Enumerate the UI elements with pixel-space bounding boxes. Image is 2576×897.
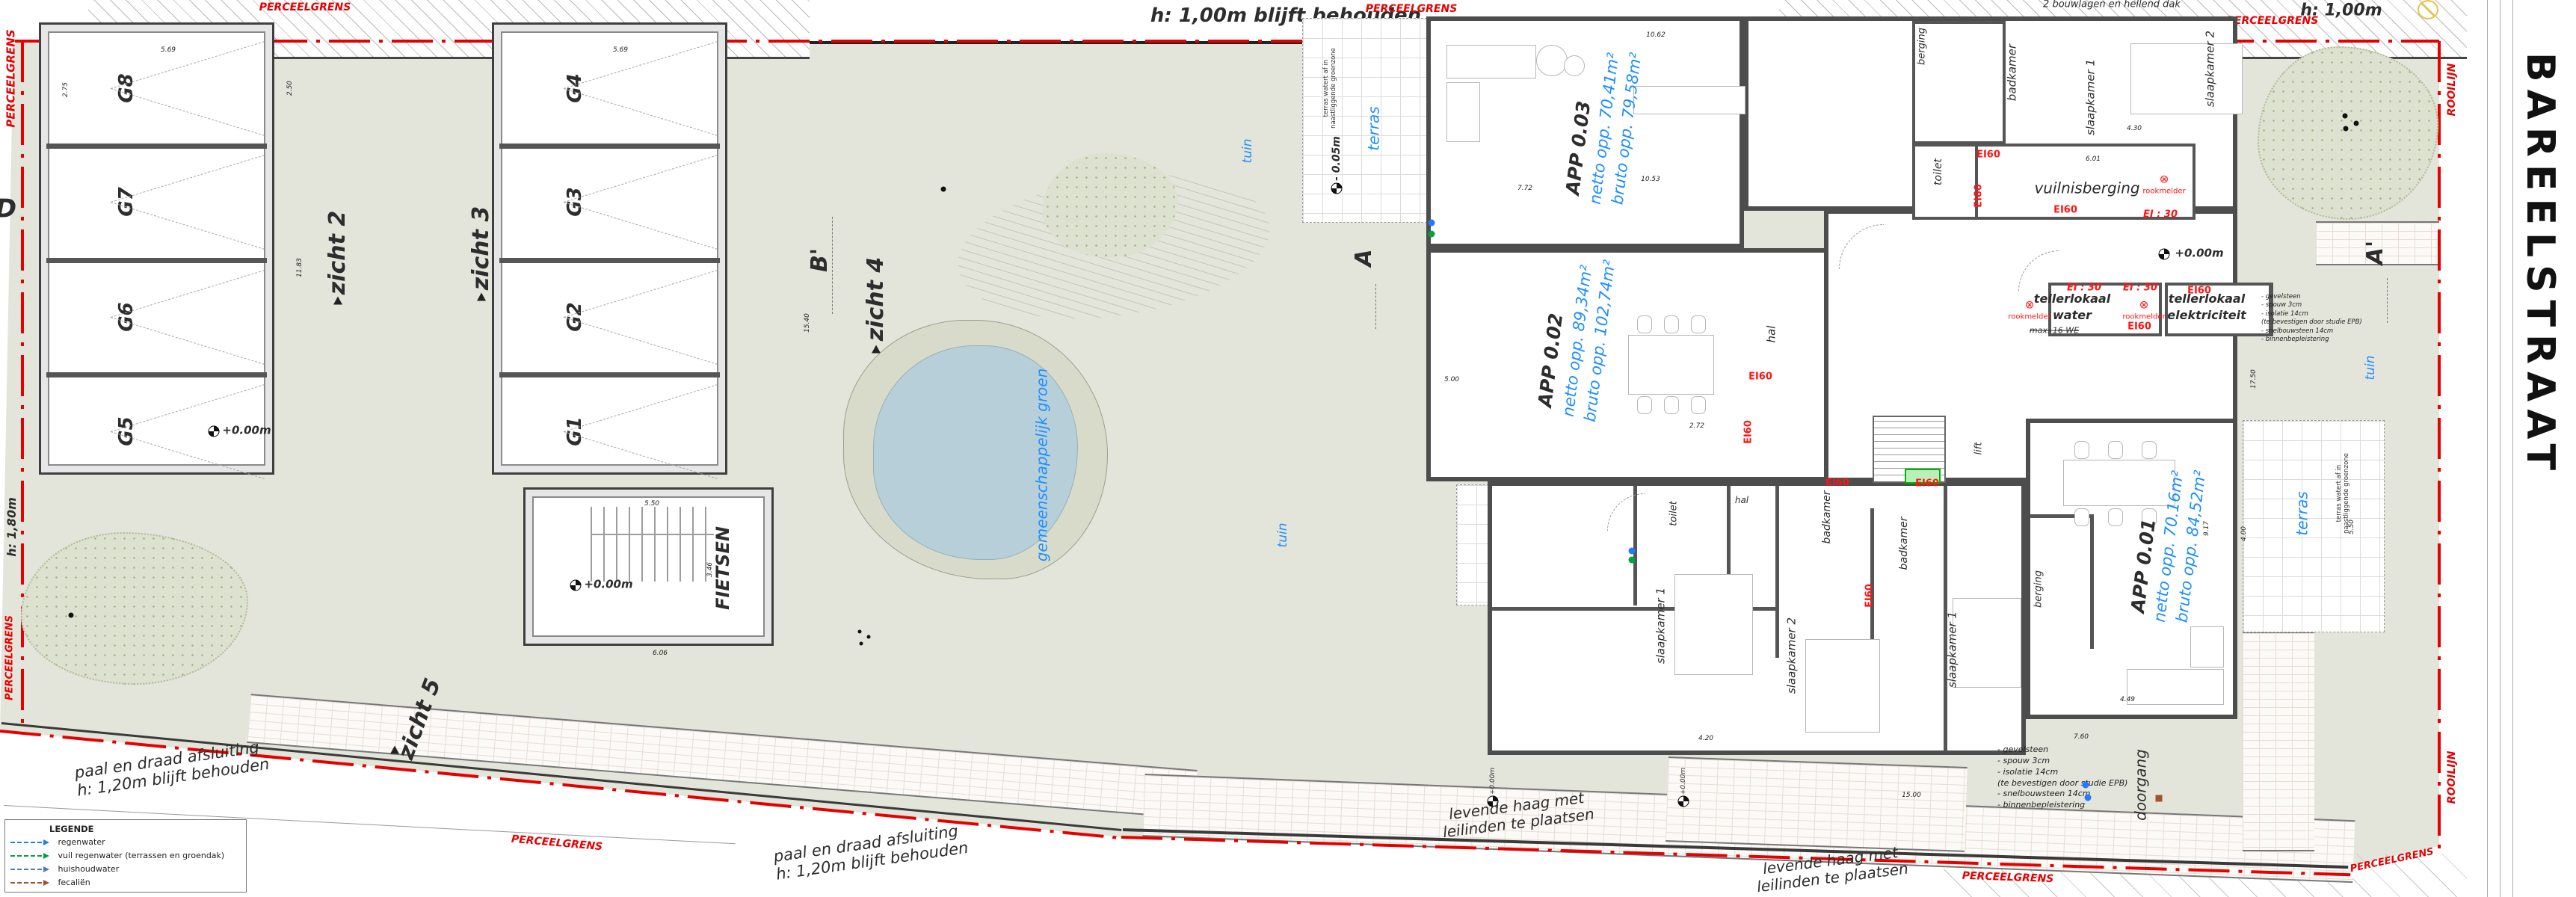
wall xyxy=(2090,514,2094,649)
note-line: (te bevestigen door studie EPB) xyxy=(2261,318,2362,327)
utility-dot-green xyxy=(1429,231,1435,238)
fence-note-south: paal en draad afsluiting h: 1,20m blijft… xyxy=(772,821,970,884)
room-label-slaapkamer1-sw: slaapkamer 1 xyxy=(1654,588,1667,664)
furniture-table-round xyxy=(1564,55,1585,76)
street-name: BAREELSTRAAT xyxy=(2518,52,2563,478)
view-camera-icon xyxy=(333,297,342,305)
dimension: 5.50 xyxy=(644,500,659,508)
garage-wall-3 xyxy=(46,372,267,377)
note-line: - binnenbepleistering xyxy=(1997,800,2127,811)
dimension: 4.00 xyxy=(2240,526,2248,541)
smoke-detector-icon: ⊗ xyxy=(2025,298,2035,311)
perceelgrens-label-west-bottom: PERCEELGRENS xyxy=(5,615,16,700)
perceelgrens-label-west-top: PERCEELGRENS xyxy=(4,29,17,127)
furniture-chair xyxy=(1664,396,1679,414)
furniture-dining-table xyxy=(1628,335,1714,395)
note-line: - spouw 3cm xyxy=(2261,301,2362,309)
dimension: 17.50 xyxy=(2250,369,2258,389)
section-line-a xyxy=(1375,284,1376,329)
tuin-label-mid: tuin xyxy=(1276,523,1291,548)
legend-arrow-icon xyxy=(43,880,49,886)
dimension: 4.49 xyxy=(2120,696,2135,703)
fire-label-ei60: EI60 xyxy=(1744,420,1755,444)
room-label-badkamer-s1: badkamer xyxy=(1821,490,1833,543)
garage-label-g6: G6 xyxy=(116,302,138,331)
section-marker-d: D xyxy=(0,194,16,224)
furniture-bed xyxy=(1674,574,1753,675)
wall-buildup-note: - gevelsteen - spouw 3cm - isolatie 14cm… xyxy=(1997,745,2127,811)
ne-wall-height: h: 1,00m xyxy=(2300,1,2382,19)
fire-label-ei60: EI60 xyxy=(2053,206,2077,217)
tree-dot xyxy=(867,635,871,639)
smoke-detector-label: rookmelder xyxy=(2122,312,2165,321)
perceelgrens-label-north-mid: PERCEELGRENS xyxy=(1366,3,1458,15)
room-toilet-north xyxy=(1912,144,1978,220)
tree-dot xyxy=(2343,114,2348,119)
note-line: - binnenbepleistering xyxy=(2261,336,2362,344)
dimension: 4.30 xyxy=(2127,125,2142,132)
section-line-a-prime xyxy=(2387,278,2388,323)
furniture-kitchen-island xyxy=(1633,86,1745,114)
tree-dot xyxy=(69,613,74,618)
dimension: 5.00 xyxy=(1444,376,1459,383)
garage-label-g2: G2 xyxy=(564,302,587,331)
note-line: - gevelsteen xyxy=(1997,745,2127,756)
dimension: 11.83 xyxy=(296,258,303,277)
furniture-dining-table xyxy=(2063,460,2175,506)
garage-label-g3: G3 xyxy=(564,187,587,216)
view-label-zicht4: zicht 4 xyxy=(863,257,890,342)
view-camera-icon xyxy=(477,293,486,301)
dimension: 6.01 xyxy=(2086,155,2101,163)
note-line: - gevelsteen xyxy=(2261,293,2362,301)
dimension: 10.62 xyxy=(1646,31,1666,39)
fire-label-ei60: EI60 xyxy=(2187,286,2211,298)
street-line-2 xyxy=(2500,0,2500,897)
room-label-hal-south: hal xyxy=(1735,496,1748,506)
terras-label-west: terras xyxy=(1366,106,1383,150)
garage-block-east xyxy=(492,22,727,475)
dimension: 2.75 xyxy=(62,82,70,97)
legend-arrow-icon xyxy=(43,866,49,872)
west-fence-height: h: 1,80m xyxy=(5,497,19,557)
utility-dot-brown xyxy=(2156,795,2163,802)
level-label: +0.00m xyxy=(1680,768,1687,795)
view-label-zicht2: zicht 2 xyxy=(325,211,351,295)
garage-wall-5 xyxy=(499,258,720,263)
boundary-line-east-rooilijn xyxy=(2438,41,2441,848)
fire-label-ei60: EI60 xyxy=(1974,184,1985,208)
level-symbol xyxy=(1678,796,1689,807)
legend-label: huishoudwater xyxy=(58,864,120,874)
tree-dot xyxy=(2344,126,2349,132)
room-label-hal-app02: hal xyxy=(1765,326,1778,343)
legend-label: regenwater xyxy=(58,837,105,847)
legend-line-icon xyxy=(10,842,42,843)
bike-row xyxy=(591,507,714,582)
furniture-sofa xyxy=(1446,82,1480,142)
utility-dot-blue xyxy=(1629,548,1636,555)
fire-label-ei30: EI : 30 xyxy=(2067,283,2101,295)
garage-label-g4: G4 xyxy=(564,73,587,102)
smoke-detector-label: rookmelder xyxy=(2008,312,2050,321)
fire-label-ei60: EI60 xyxy=(2127,322,2151,333)
level-label: +0.00m xyxy=(1489,768,1497,795)
smoke-detector-icon: ⊗ xyxy=(2139,298,2149,311)
legend-item-fecalien: fecaliën xyxy=(10,878,90,887)
terrace-app01-east xyxy=(2243,420,2385,632)
dimension: 5.50 xyxy=(2348,520,2355,534)
terras-label-east: terras xyxy=(2294,491,2311,535)
section-marker-b-prime: B' xyxy=(807,248,833,272)
garage-label-g1: G1 xyxy=(564,416,587,446)
furniture-bed xyxy=(1953,598,2021,688)
garage-wall-2 xyxy=(46,258,267,263)
furniture-chair xyxy=(2074,508,2089,526)
street-line-3 xyxy=(2512,0,2513,897)
section-line-b xyxy=(832,217,833,314)
dimension: 2.72 xyxy=(1689,422,1704,430)
legend-item-huishoudwater: huishoudwater xyxy=(10,864,119,874)
rooilijn-label-top: ROOILIJN xyxy=(2446,64,2458,117)
fire-label-ei60: EI60 xyxy=(1915,479,1939,490)
room-label-slaapkamer1-se: slaapkamer 1 xyxy=(1946,611,1959,688)
note-line: (te bevestigen door studie EPB) xyxy=(1997,778,2127,789)
garage-label-g5: G5 xyxy=(116,416,138,446)
view-label-zicht3: zicht 3 xyxy=(469,206,495,291)
legend-item-vuil-regenwater: vuil regenwater (terrassen en groendak) xyxy=(10,851,224,860)
garage-label-g7: G7 xyxy=(116,187,138,216)
room-label-slaapkamer2-s: slaapkamer 2 xyxy=(1785,617,1798,694)
legend-arrow-icon xyxy=(43,839,49,845)
fire-label-ei30: EI : 30 xyxy=(2123,283,2157,295)
furniture-chair xyxy=(1637,396,1652,414)
garage-label-g8: G8 xyxy=(116,73,138,102)
room-label-elektriciteit: elektriciteit xyxy=(2167,309,2246,322)
room-label-toilet: toilet xyxy=(1932,158,1944,185)
room-label-slaapkamer2: slaapkamer 2 xyxy=(2204,31,2216,107)
room-label-vuilnisberging: vuilnisberging xyxy=(2034,180,2139,197)
legend-label: vuil regenwater (terrassen en groendak) xyxy=(58,851,225,860)
furniture-chair xyxy=(1691,396,1706,414)
wall xyxy=(1870,508,1874,658)
furniture-chair xyxy=(1664,315,1679,333)
dimension: 7.60 xyxy=(2074,733,2089,741)
dimension: 5.69 xyxy=(161,46,176,54)
perceelgrens-label-north-west: PERCEELGRENS xyxy=(259,1,351,13)
common-green-label: gemeenschappelijk groen xyxy=(1034,369,1051,562)
room-label-water: water xyxy=(2053,309,2092,322)
fire-label-ei60: EI60 xyxy=(1825,478,1849,490)
rooilijn-label-bottom: ROOILIJN xyxy=(2446,751,2458,804)
dimension: 6.06 xyxy=(653,650,668,657)
dimension: 7.72 xyxy=(1517,185,1532,192)
fire-label-ei30: EI : 30 xyxy=(2143,210,2178,221)
legend-title: LEGENDE xyxy=(49,824,94,834)
tree-dot xyxy=(860,642,863,646)
furniture-chair xyxy=(2074,441,2089,459)
furniture-bed xyxy=(1805,639,1880,733)
utility-dot-blue xyxy=(2085,795,2092,801)
dimension: 3.46 xyxy=(706,562,714,577)
tree-dot xyxy=(941,187,946,192)
utility-dot-green xyxy=(1629,557,1636,564)
furniture-sofa xyxy=(2127,669,2224,705)
wall xyxy=(1775,486,1779,658)
note-line: - snelbouwsteen 14cm xyxy=(2261,327,2362,336)
room-label-berging-app01: berging xyxy=(2034,570,2045,608)
drain-note-line1: terras watert af in xyxy=(1322,60,1330,117)
section-marker-a: A xyxy=(1352,249,1378,266)
furniture-table-round xyxy=(1536,45,1568,76)
level-symbol xyxy=(209,426,220,437)
fire-label-ei60: EI60 xyxy=(1865,584,1876,608)
room-label-toilet-south: toilet xyxy=(1669,501,1680,525)
dimension: 4.20 xyxy=(1698,735,1713,742)
furniture-sofa xyxy=(1446,45,1536,78)
furniture-chair xyxy=(1691,315,1706,333)
dimension: 9.17 xyxy=(2203,521,2210,536)
furniture-chair xyxy=(2108,508,2123,526)
note-line: - isolatie 14cm xyxy=(1997,767,2127,778)
storeys-note: 2 bouwlagen en hellend dak xyxy=(2043,0,2181,10)
legend-line-icon xyxy=(10,869,42,870)
legend-arrow-icon xyxy=(43,853,49,859)
utility-dot-blue xyxy=(2083,782,2089,789)
level-label: +0.00m xyxy=(222,424,271,437)
smoke-detector-label: rookmelder xyxy=(2142,187,2185,196)
passage-label: doorgang xyxy=(2133,749,2150,821)
level-label: +0.00m xyxy=(584,578,632,591)
dimension: 5.69 xyxy=(613,46,628,54)
furniture-chair xyxy=(2108,441,2123,459)
level-label-minus: - 0.05m xyxy=(1331,136,1343,181)
level-symbol xyxy=(1331,183,1343,194)
drain-note-line2: naastliggende groenzone xyxy=(1330,48,1337,129)
room-label-badkamer: badkamer xyxy=(2006,44,2018,101)
fire-label-ei60: EI60 xyxy=(1748,372,1772,383)
note-line: - snelbouwsteen 14cm xyxy=(1997,789,2127,800)
section-marker-a-prime: A' xyxy=(2363,241,2389,265)
furniture-bed xyxy=(2130,43,2243,114)
dimension: 15.00 xyxy=(1902,792,1921,799)
tree-dot xyxy=(858,630,862,634)
level-symbol xyxy=(570,580,582,591)
smoke-detector-icon: ⊗ xyxy=(2160,173,2169,185)
room-label-badkamer-s2: badkamer xyxy=(1898,517,1910,570)
room-label-tellerlokaal-water: tellerlokaal xyxy=(2034,292,2110,306)
dimension: 2.50 xyxy=(286,81,294,96)
legend-label: fecaliën xyxy=(58,878,90,887)
street-line-1 xyxy=(2487,0,2488,897)
note-line: - spouw 3cm xyxy=(1997,756,2127,767)
legend-line-icon xyxy=(10,882,42,884)
tree-dot xyxy=(2354,121,2359,126)
dimension: 15.40 xyxy=(804,313,811,333)
room-label-slaapkamer1: slaapkamer 1 xyxy=(2084,59,2097,135)
garage-block-west xyxy=(39,22,274,475)
bike-room-label: FIETSEN xyxy=(713,526,734,610)
level-symbol xyxy=(2159,249,2170,260)
furniture-chair xyxy=(2142,441,2157,459)
level-label: +0.00m xyxy=(2175,247,2223,259)
room-label-max-we: max. 16 WE xyxy=(2030,327,2079,336)
legend-line-icon xyxy=(10,855,42,857)
drain-note-line1: terras watert af in xyxy=(2335,465,2343,523)
fire-label-ei60: EI60 xyxy=(1976,150,2000,161)
tuin-label-east: tuin xyxy=(2364,356,2379,380)
garage-wall-4 xyxy=(499,144,720,149)
path-east-side xyxy=(2243,632,2314,851)
dimension: 10.53 xyxy=(1641,176,1660,183)
terrace-drain-note-west: terras watert af in naastliggende groenz… xyxy=(1323,48,1338,129)
path-forecourt xyxy=(1666,756,1968,852)
legend-item-regenwater: regenwater xyxy=(10,837,105,847)
view-camera-icon xyxy=(390,746,399,754)
garage-wall-1 xyxy=(46,144,267,149)
utility-dot-blue xyxy=(1429,220,1435,226)
site-plan: h: 1,00m blijft behouden PERCEELGRENS PE… xyxy=(0,0,2576,897)
furniture-sofa xyxy=(2190,626,2224,668)
wall-buildup-note-small: - gevelsteen - spouw 3cm - isolatie 14cm… xyxy=(2261,293,2362,345)
tuin-label-north: tuin xyxy=(1241,139,1256,164)
survey-symbol xyxy=(2418,0,2438,19)
note-line: - isolatie 14cm xyxy=(2261,310,2362,318)
garage-wall-6 xyxy=(499,372,720,377)
furniture-chair xyxy=(1637,315,1652,333)
room-label-lift: lift xyxy=(1974,443,1985,455)
room-label-berging: berging xyxy=(1917,28,1929,65)
